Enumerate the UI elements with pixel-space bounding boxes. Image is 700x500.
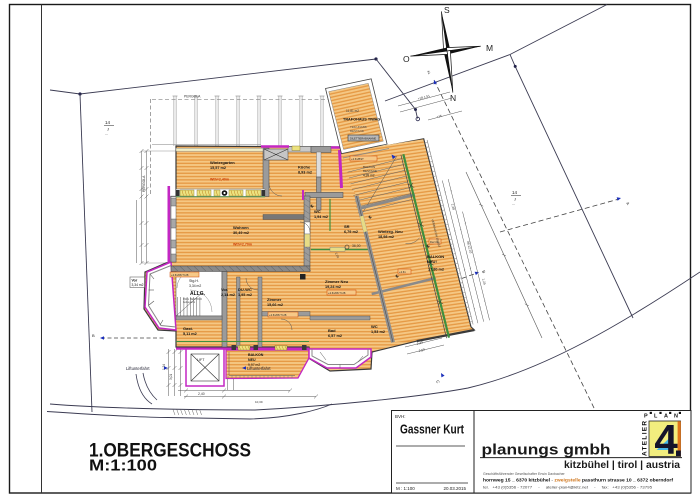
svg-text:DU-WC: DU-WC: [238, 287, 252, 292]
svg-text:17,80 m2: 17,80 m2: [428, 268, 444, 272]
svg-text:Wintergarten: Wintergarten: [210, 160, 235, 165]
svg-text:BALKON: BALKON: [248, 353, 264, 357]
svg-text:ATELIER: ATELIER: [642, 420, 649, 456]
svg-text:P: P: [644, 414, 648, 420]
svg-text:15,66 m2: 15,66 m2: [267, 303, 283, 307]
svg-text:6,79 m2: 6,79 m2: [344, 230, 358, 234]
svg-text:+2.61/08.TI.28: +2.61/08.TI.28: [269, 313, 287, 317]
svg-text:LIFT: LIFT: [197, 358, 205, 362]
svg-text:1,95 m2: 1,95 m2: [238, 293, 252, 297]
svg-text:Winterg. Neu: Winterg. Neu: [378, 229, 403, 234]
svg-text:14: 14: [105, 120, 111, 125]
svg-text:M : 1:100: M : 1:100: [396, 486, 415, 491]
svg-text:30,49 m2: 30,49 m2: [233, 231, 249, 235]
svg-text:Küche: Küche: [298, 165, 311, 170]
svg-text:18,98 m2: 18,98 m2: [378, 235, 394, 239]
svg-text:Vor: Vor: [132, 279, 138, 283]
svg-text:A: A: [664, 414, 668, 420]
svg-text:SR: SR: [344, 224, 350, 229]
svg-text:Zimmer Neu: Zimmer Neu: [325, 279, 349, 284]
svg-text:beibegamt: beibegamt: [183, 300, 195, 304]
svg-text:Liftunterfahrt: Liftunterfahrt: [126, 366, 150, 371]
svg-text:...: ...: [512, 201, 515, 206]
svg-text:Geschäftsführender Gesellschaf: Geschäftsführender Gesellschafter Erwin …: [483, 472, 566, 476]
svg-text:PERGOLA: PERGOLA: [184, 95, 201, 99]
svg-text:N: N: [674, 414, 678, 420]
svg-text:3,34 m2: 3,34 m2: [189, 284, 201, 288]
svg-text:36,00: 36,00: [352, 244, 361, 248]
svg-text:hornweg 15 _ 6370 kitzbühel -: hornweg 15 _ 6370 kitzbühel - zweigstell…: [483, 478, 673, 484]
svg-text:11,81 m2: 11,81 m2: [346, 109, 359, 113]
svg-text:Bad: Bad: [328, 328, 336, 333]
svg-text:Gassner Kurt: Gassner Kurt: [400, 422, 465, 437]
svg-text:planungs gmbh: planungs gmbh: [482, 442, 611, 459]
svg-text:WC: WC: [371, 324, 378, 329]
svg-text:B: B: [92, 333, 95, 338]
svg-text:19,24 m2: 19,24 m2: [325, 285, 341, 289]
svg-text:DILETTIERABNAHME: DILETTIERABNAHME: [350, 137, 376, 141]
svg-text:BESTAND: BESTAND: [363, 169, 378, 173]
svg-text:+2.61/08.TI.28: +2.61/08.TI.28: [328, 291, 346, 295]
svg-text:4: 4: [654, 416, 678, 463]
svg-text:15,57 m2: 15,57 m2: [210, 166, 226, 170]
svg-text:2,14 m2: 2,14 m2: [221, 293, 235, 297]
svg-text:ALLG.: ALLG.: [190, 291, 206, 297]
svg-text:8,93 m2: 8,93 m2: [298, 171, 312, 175]
svg-text:tel. +43 (0)5356 - 72077: tel. +43 (0)5356 - 72077 - atelier-plan4…: [483, 486, 652, 490]
svg-text:NEU: NEU: [248, 358, 256, 362]
svg-text:5,11 m2: 5,11 m2: [183, 332, 197, 336]
svg-text:20.03.2015: 20.03.2015: [443, 486, 466, 491]
svg-text:Zimmer: Zimmer: [267, 297, 282, 302]
svg-text:BVH:: BVH:: [395, 414, 406, 419]
svg-text:14: 14: [512, 190, 518, 195]
svg-text:O: O: [403, 54, 410, 64]
svg-text:TRAFOHAUS TIWAG: TRAFOHAUS TIWAG: [343, 118, 380, 122]
svg-text:1,53 m2: 1,53 m2: [371, 330, 385, 334]
svg-text:6,57 m2: 6,57 m2: [328, 334, 342, 338]
svg-text:...: ...: [105, 131, 108, 136]
svg-text:Stg.H.: Stg.H.: [189, 279, 199, 283]
svg-text:Liftunterfahrt: Liftunterfahrt: [247, 366, 271, 371]
svg-text:PERGOLA: PERGOLA: [142, 175, 146, 192]
svg-text:Vor.: Vor.: [221, 287, 228, 292]
svg-text:Wohnen: Wohnen: [233, 225, 249, 230]
svg-text:4,99 m2: 4,99 m2: [363, 174, 375, 178]
svg-text:1,94 m2: 1,94 m2: [314, 215, 328, 219]
svg-text:3,34 m2: 3,34 m2: [132, 283, 144, 287]
svg-text:N: N: [450, 93, 456, 103]
svg-text:S: S: [444, 5, 450, 15]
svg-text:2,40: 2,40: [198, 392, 205, 396]
svg-text:Wth=2,40m: Wth=2,40m: [210, 178, 229, 182]
svg-text:+2.61/08.TI.28: +2.61/08.TI.28: [171, 273, 189, 277]
svg-text:M: M: [486, 43, 493, 53]
svg-text:Gast.: Gast.: [183, 326, 193, 331]
svg-text:+2.61/BST: +2.61/BST: [351, 157, 364, 161]
svg-text:NEU!: NEU!: [427, 259, 437, 264]
svg-text:10,39: 10,39: [255, 400, 263, 404]
svg-text:M:1:100: M:1:100: [89, 458, 157, 475]
svg-text:3,01: 3,01: [169, 374, 173, 380]
svg-text:+2.61: +2.61: [399, 270, 406, 274]
svg-text:WC: WC: [314, 209, 321, 214]
svg-text:Wth=2,70m: Wth=2,70m: [233, 243, 252, 247]
svg-text:BESTAND: BESTAND: [350, 129, 365, 133]
